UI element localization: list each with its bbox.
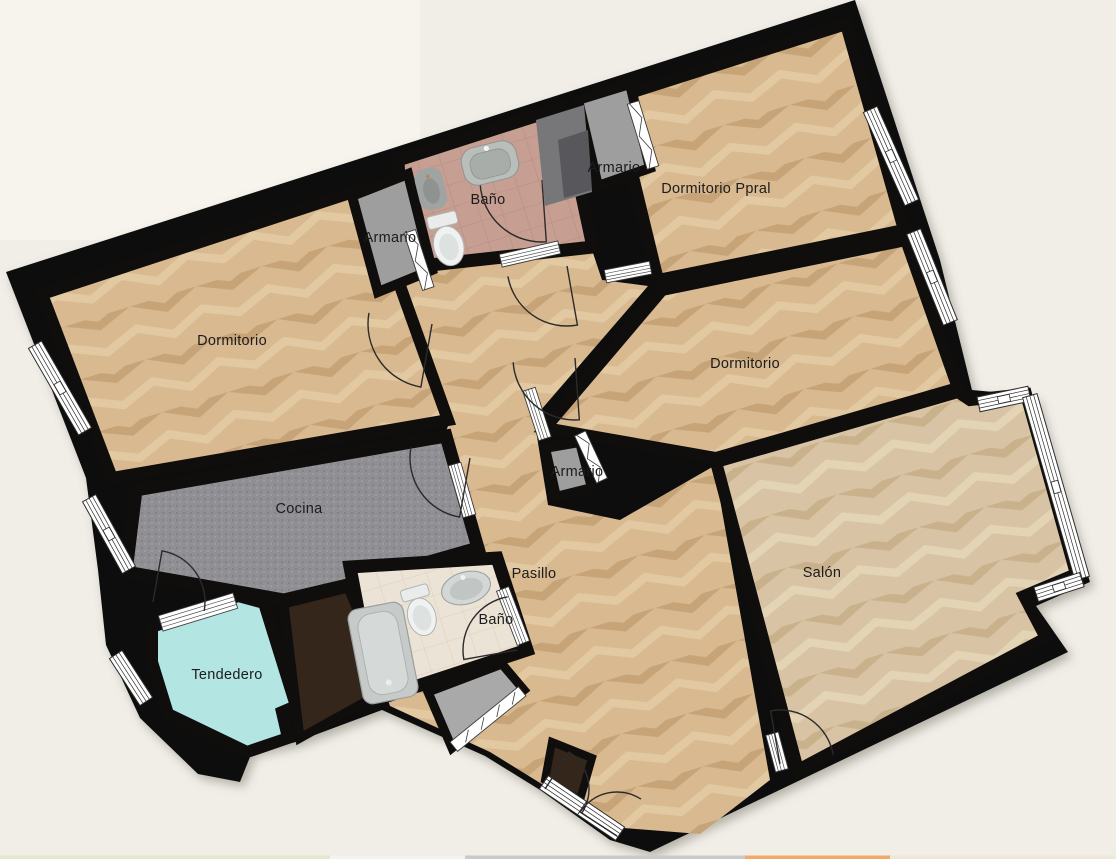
strip-segment-5 (890, 856, 1116, 859)
strip-segment-4 (745, 856, 890, 859)
label-dormitorio-ppral: Dormitorio Ppral (661, 181, 771, 197)
floorplan-canvas: Baño Armario Dormitorio Ppral Armario Do… (0, 0, 1116, 859)
label-dormitorio-mid: Dormitorio (710, 356, 780, 372)
strip-segment-1 (0, 856, 330, 859)
label-armario-center: Armario (551, 464, 604, 480)
strip-segment-2 (330, 856, 465, 859)
label-armario-top-left: Armario (364, 230, 417, 246)
label-dormitorio-left: Dormitorio (197, 333, 267, 349)
bottom-strip (0, 856, 1116, 859)
label-bano-top: Baño (470, 192, 505, 208)
label-bano-bottom: Baño (478, 612, 513, 628)
label-cocina: Cocina (276, 501, 324, 517)
label-pasillo: Pasillo (512, 566, 557, 582)
label-armario-top-right: Armario (588, 160, 641, 176)
label-salon: Salón (803, 565, 842, 581)
strip-segment-3 (465, 856, 745, 859)
floorplan-page: Baño Armario Dormitorio Ppral Armario Do… (0, 0, 1116, 859)
label-tendedero: Tendedero (191, 667, 262, 683)
